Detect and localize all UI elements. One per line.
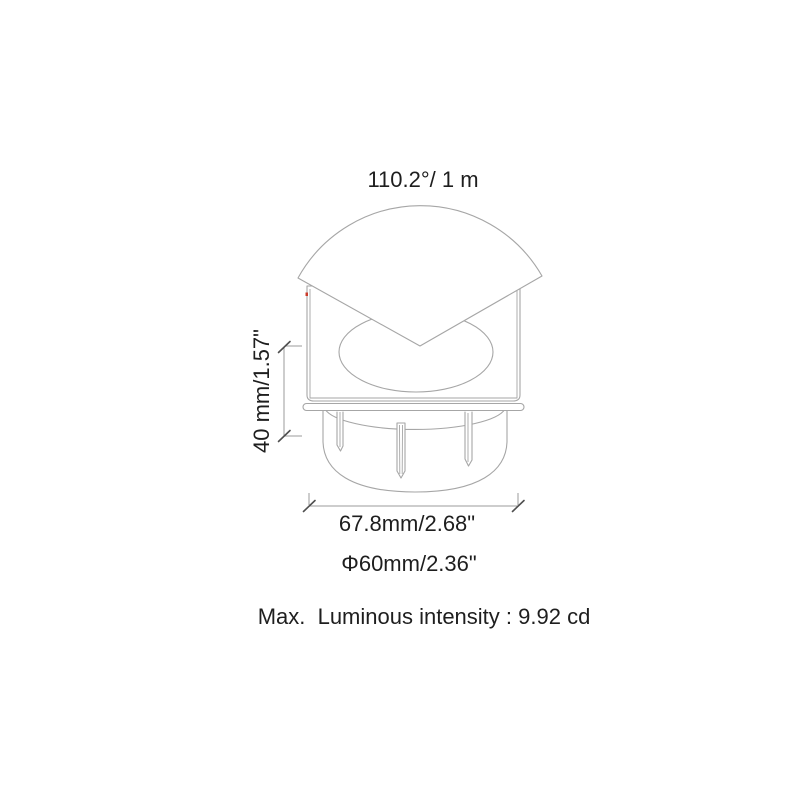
luminous-intensity-label: Max. Luminous intensity : 9.92 cd xyxy=(224,604,624,630)
fin-slot-middle xyxy=(397,423,405,478)
fin-slot-right-outline xyxy=(465,412,472,466)
width-dim-stubs xyxy=(309,493,518,505)
width-dimension xyxy=(304,493,525,512)
fin-slot-middle-outline xyxy=(397,423,405,478)
fin-slot-left xyxy=(337,412,343,451)
fin-slot-right xyxy=(465,412,472,466)
beam-angle-label: 110.2°/ 1 m xyxy=(298,167,548,193)
product-dimension-drawing: 110.2°/ 1 m 40 mm/1.57" 67.8mm/2.68" Φ60… xyxy=(0,0,800,800)
height-dimension xyxy=(279,342,303,442)
height-dim-stubs xyxy=(285,346,302,436)
height-dimension-label: 40 mm/1.57" xyxy=(249,321,273,461)
fixture-diagram xyxy=(0,0,800,800)
width-dimension-label: 67.8mm/2.68" xyxy=(307,511,507,537)
red-mark-dot xyxy=(306,293,309,297)
flange xyxy=(303,404,524,411)
housing-body xyxy=(323,409,507,492)
diameter-dimension-label: Φ60mm/2.36" xyxy=(309,551,509,577)
